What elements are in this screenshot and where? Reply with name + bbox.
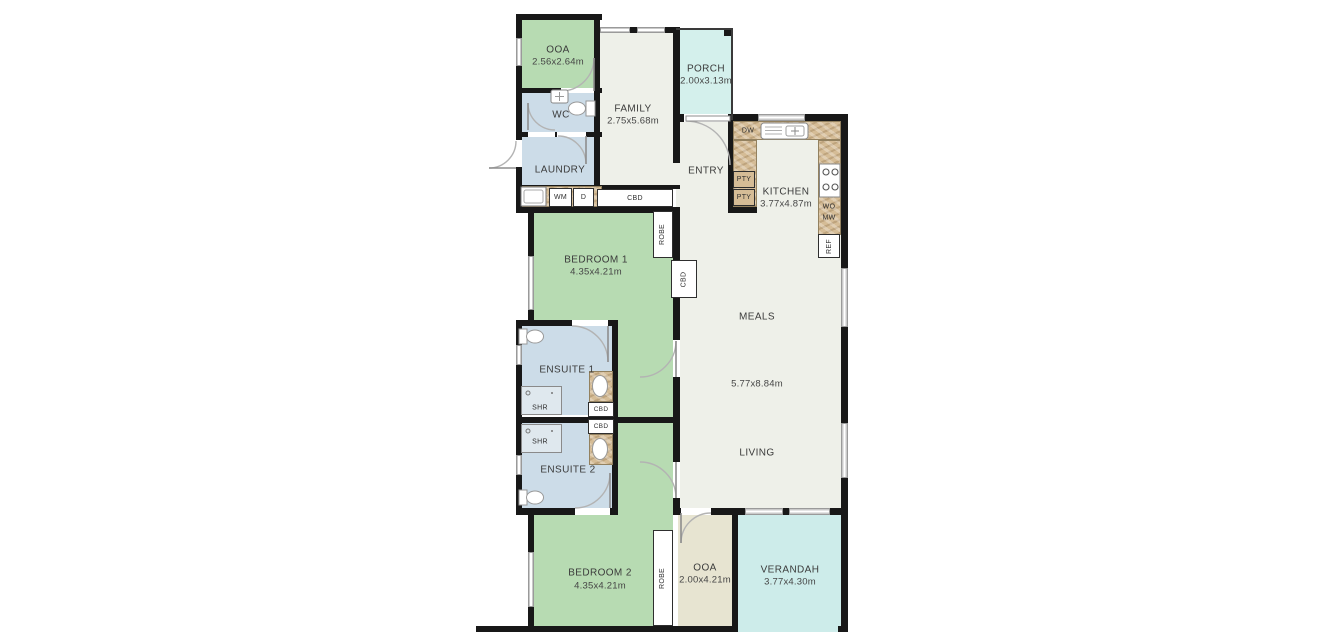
wall-oven-label: WO xyxy=(823,204,836,211)
window-living xyxy=(841,423,848,478)
dryer: D xyxy=(573,188,594,207)
label-ooa-top: OOA xyxy=(546,45,569,56)
ensuite1-vanity xyxy=(589,371,613,402)
fridge-label: REF xyxy=(826,239,833,254)
cbd-ensuite2-label: CBD xyxy=(594,423,609,430)
door-gap-ensuite2 xyxy=(575,508,610,515)
cbd-hall-label: CBD xyxy=(627,195,643,202)
label-living: LIVING xyxy=(739,448,774,459)
wall xyxy=(516,320,572,326)
robe-bedroom2: ROBE xyxy=(653,530,673,626)
label-ensuite2: ENSUITE 2 xyxy=(540,465,595,476)
door-gap-front-entry xyxy=(684,114,728,122)
label-laundry: LAUNDRY xyxy=(535,165,585,176)
dims-open-area: 5.77x8.84m xyxy=(731,379,783,390)
label-ensuite1: ENSUITE 1 xyxy=(539,365,594,376)
sliding-door-living-2 xyxy=(789,508,830,515)
cbd-ensuite2: CBD xyxy=(588,419,614,434)
label-meals: MEALS xyxy=(739,312,775,323)
door-gap-laundry xyxy=(557,132,586,137)
shr-ensuite1-label: SHR xyxy=(532,405,548,412)
dryer-label: D xyxy=(581,194,586,201)
washing-machine: WM xyxy=(549,188,572,207)
pantry-top: PTY xyxy=(733,171,755,188)
door-gap-ensuite1 xyxy=(572,320,608,326)
window-kitchen xyxy=(758,114,805,121)
pantry-top-label: PTY xyxy=(737,176,752,183)
cbd-ensuite1-label: CBD xyxy=(594,406,609,413)
robe-bedroom1-label: ROBE xyxy=(660,224,667,245)
porch-edge xyxy=(731,28,733,120)
dims-verandah: 3.77x4.30m xyxy=(764,577,816,588)
dims-bedroom2: 4.35x4.21m xyxy=(574,581,626,592)
label-kitchen: KITCHEN xyxy=(763,187,810,198)
wall xyxy=(594,14,600,213)
cbd-ensuite1: CBD xyxy=(588,402,614,417)
washing-machine-label: WM xyxy=(554,194,567,201)
window-bedroom2 xyxy=(528,552,534,607)
dims-ooa-bottom: 2.00x4.21m xyxy=(679,575,731,586)
door-arc-laundry-external xyxy=(489,141,516,168)
door-gap-bedroom1 xyxy=(673,340,680,377)
window-ooa-top xyxy=(516,38,522,66)
door-gap-ooa-bottom xyxy=(681,508,711,515)
robe-bedroom1: ROBE xyxy=(653,211,673,258)
room-laundry-floor xyxy=(520,135,598,188)
label-verandah: VERANDAH xyxy=(761,565,820,576)
wall xyxy=(841,510,848,632)
wall xyxy=(476,626,738,632)
shr-ensuite2-label: SHR xyxy=(532,439,548,446)
cbd-hall-cupboard: CBD xyxy=(597,189,673,207)
label-porch: PORCH xyxy=(687,64,725,75)
wall xyxy=(732,510,738,632)
dims-bedroom1: 4.35x4.21m xyxy=(570,267,622,278)
wall xyxy=(673,27,680,163)
fridge: REF xyxy=(818,234,840,258)
pantry-bottom-label: PTY xyxy=(737,194,752,201)
dims-porch: 2.00x3.13m xyxy=(680,76,732,87)
window-ensuite2 xyxy=(516,455,522,475)
label-ooa-bottom: OOA xyxy=(693,563,716,574)
door-gap-bedroom2 xyxy=(673,462,680,498)
robe-bedroom2-label: ROBE xyxy=(660,567,667,588)
window-bedroom1 xyxy=(528,256,534,310)
wall xyxy=(516,14,602,20)
label-family: FAMILY xyxy=(614,104,651,115)
cbd-closet: CBD xyxy=(671,260,697,298)
window-family-2 xyxy=(637,27,665,33)
dims-kitchen: 3.77x4.87m xyxy=(760,199,812,210)
dishwasher-label: DW xyxy=(742,128,754,135)
wall xyxy=(516,508,575,515)
label-bedroom2: BEDROOM 2 xyxy=(568,568,632,579)
door-gap-ooa-top xyxy=(561,88,594,93)
label-bedroom1: BEDROOM 1 xyxy=(564,255,628,266)
room-bedroom1-floor-strip xyxy=(618,326,673,417)
door-gap-wc xyxy=(528,132,555,137)
window-meals xyxy=(841,268,848,327)
sliding-door-living-1 xyxy=(745,508,783,515)
dims-ooa-top: 2.56x2.64m xyxy=(532,57,584,68)
window-ensuite1 xyxy=(516,345,522,365)
floor-plan: CBD ROBE CBD ROBE WM D PTY PTY REF CBD C… xyxy=(0,0,1329,632)
label-entry: ENTRY xyxy=(688,166,724,177)
cbd-closet-label: CBD xyxy=(681,271,688,287)
microwave-label: MW xyxy=(822,215,835,222)
ensuite2-vanity xyxy=(589,434,613,465)
door-gap-laundry-external xyxy=(516,140,522,167)
label-wc: WC xyxy=(552,110,569,121)
porch-edge xyxy=(676,28,733,30)
room-bedroom2-floor-strip xyxy=(618,423,673,515)
window-family-1 xyxy=(600,27,630,33)
dims-family: 2.75x5.68m xyxy=(607,116,659,127)
pantry-bottom: PTY xyxy=(733,189,755,206)
